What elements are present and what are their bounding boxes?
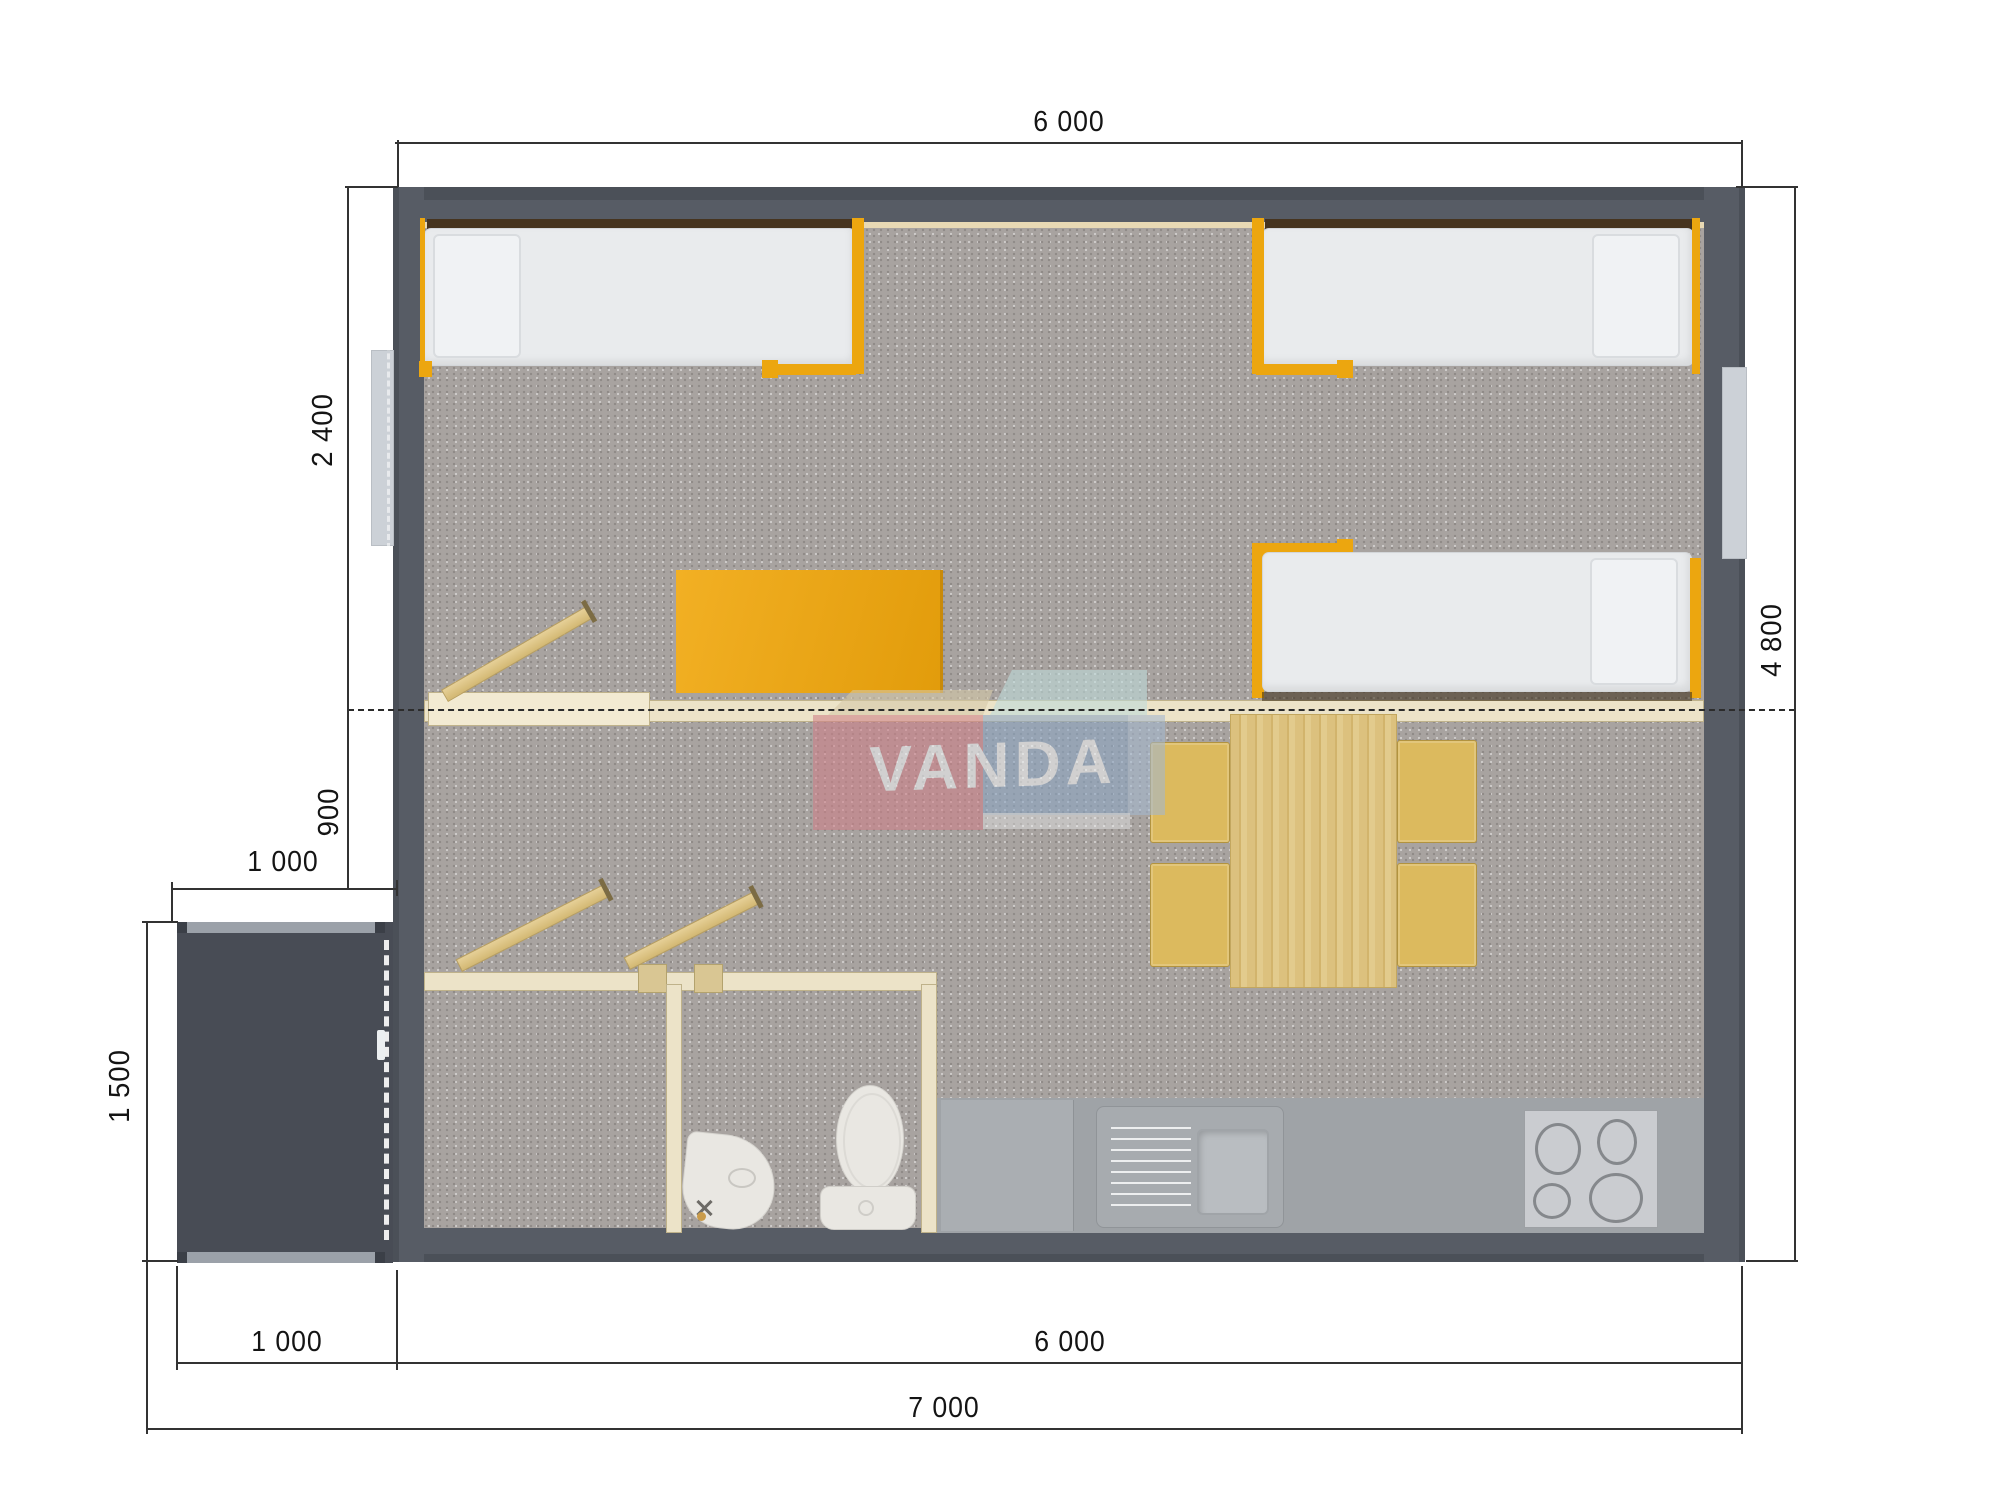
burner-top-right xyxy=(1597,1119,1637,1165)
dim-line-porch-width xyxy=(172,888,398,890)
chair-bottom-left xyxy=(1150,863,1230,967)
wall-bottom xyxy=(393,1228,1745,1262)
dim-ext xyxy=(396,1270,398,1370)
logo-text: VANDA xyxy=(818,694,1168,836)
bed-3 xyxy=(1250,538,1702,702)
dim-ext xyxy=(1741,1266,1743,1434)
bed-1-frame-left xyxy=(420,218,425,374)
dim-line-bottom-2 xyxy=(146,1428,1743,1430)
dim-line-right xyxy=(1794,187,1796,1262)
dim-ext xyxy=(396,880,398,896)
porch-step-cap xyxy=(375,922,385,933)
bed-2-frame-right xyxy=(1692,218,1700,374)
dim-label-porch-width: 1 000 xyxy=(219,846,348,878)
dim-line-left xyxy=(347,186,349,890)
dim-line-porch-depth xyxy=(146,922,148,1434)
bed-1-frame-foot xyxy=(766,364,856,375)
washbasin-drain xyxy=(728,1168,756,1188)
dim-label-bottom-total: 7 000 xyxy=(880,1392,1009,1424)
partition-centerline xyxy=(348,709,1795,711)
dim-label-right-height: 4 800 xyxy=(1756,574,1788,707)
dining-table xyxy=(1230,714,1397,988)
entry-door-dashes xyxy=(384,940,389,1240)
bed-2-pillow xyxy=(1592,234,1680,358)
porch-step-top xyxy=(177,922,385,933)
bed-1-pillow xyxy=(433,234,521,358)
bottom-wall-dashes xyxy=(400,1264,1700,1269)
dim-ext xyxy=(1741,140,1743,187)
sink-unit xyxy=(1096,1106,1284,1228)
door-jamb-right xyxy=(694,964,723,993)
burner-bottom-left xyxy=(1533,1183,1571,1219)
left-wall-dashes xyxy=(387,200,390,910)
chair-bottom-right xyxy=(1397,863,1477,967)
dim-label-bedroom-depth: 2 400 xyxy=(307,364,339,497)
dim-ext xyxy=(176,1266,178,1370)
sink-basin xyxy=(1197,1129,1269,1215)
faucet-icon xyxy=(693,1196,717,1220)
porch-step-cap xyxy=(177,1252,187,1263)
dim-ext xyxy=(142,1260,178,1262)
window-left xyxy=(371,350,394,546)
bed-3-pillow xyxy=(1590,558,1678,685)
bed-1 xyxy=(418,216,866,378)
dim-ext xyxy=(1746,1260,1798,1262)
bed-3-shadow xyxy=(1262,692,1692,701)
bed-1-post-b xyxy=(762,360,778,378)
vanda-watermark: VANDA xyxy=(810,640,1210,870)
kitchen-cabinet xyxy=(941,1100,1074,1231)
chair-top-right xyxy=(1397,740,1477,843)
porch xyxy=(177,922,393,1263)
dim-ext xyxy=(1736,186,1798,188)
porch-step-cap xyxy=(177,922,187,933)
sink-drainboard xyxy=(1111,1127,1191,1211)
bed-2-post-b xyxy=(1337,360,1353,378)
bed-2 xyxy=(1250,216,1702,378)
dim-label-top-width: 6 000 xyxy=(1005,106,1134,138)
dim-ext xyxy=(397,140,399,187)
bed-1-post-a xyxy=(419,361,432,377)
stove xyxy=(1524,1110,1658,1228)
toilet-seat xyxy=(843,1093,901,1189)
bed-2-frame-left xyxy=(1252,218,1264,374)
dim-label-bottom-house: 6 000 xyxy=(1006,1326,1135,1358)
dim-line-top xyxy=(395,142,1743,144)
dim-label-bottom-porch: 1 000 xyxy=(223,1326,352,1358)
dim-label-porch-depth: 1 500 xyxy=(104,1020,136,1153)
entry-door-handle xyxy=(377,1030,385,1060)
porch-step-bottom xyxy=(177,1252,385,1263)
bathroom-wall xyxy=(921,984,937,1233)
burner-bottom-right xyxy=(1589,1173,1643,1223)
toilet-flush-button xyxy=(858,1200,874,1216)
bed-1-frame-right xyxy=(852,218,864,374)
dim-ext xyxy=(345,186,398,188)
porch-step-cap xyxy=(375,1252,385,1263)
dim-ext xyxy=(142,921,178,923)
divider-wall xyxy=(666,984,682,1233)
bed-2-frame-foot xyxy=(1256,364,1348,375)
door-jamb-left xyxy=(638,964,667,993)
wall-right xyxy=(1704,187,1745,1262)
dim-line-bottom-1 xyxy=(177,1362,1743,1364)
burner-top-left xyxy=(1535,1123,1581,1175)
floor-plan: VANDA 6 000 4 800 2 400 900 1 000 1 500 … xyxy=(0,0,2000,1502)
bed-3-frame-right xyxy=(1690,558,1701,698)
dim-ext xyxy=(171,882,173,922)
window-right xyxy=(1722,367,1747,559)
